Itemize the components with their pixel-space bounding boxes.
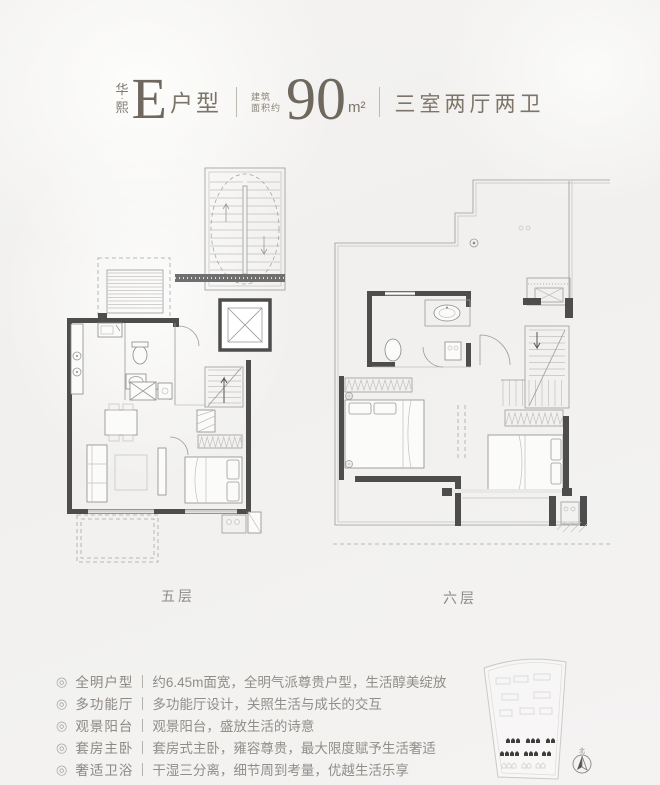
- area-unit: m²: [348, 99, 366, 124]
- feature-desc: 干湿三分离，细节周到考量，优越生活乐享: [152, 759, 409, 779]
- internal-stairs: [205, 367, 243, 407]
- dining-table-icon: [105, 404, 137, 441]
- feature-title: 观景阳台: [75, 715, 133, 735]
- feature-divider: [142, 697, 143, 710]
- living-room: [87, 445, 166, 502]
- bullet-icon: ◎: [56, 675, 67, 688]
- bedroom-right: [442, 410, 572, 496]
- louver-vent: [98, 258, 170, 320]
- stairs-down: [501, 326, 569, 408]
- entry-door-arc: [179, 326, 199, 346]
- sink-icon: [98, 323, 122, 337]
- feature-desc: 套房式主卧，雍容尊贵，最大限度赋予生活奢适: [152, 737, 436, 757]
- bedroom-door-arc: [170, 437, 188, 455]
- floor-label-5f: 五层: [58, 586, 298, 606]
- sofa-icon: [87, 445, 107, 502]
- desk-icon: [197, 410, 215, 432]
- kitchen: [71, 323, 122, 394]
- bullet-icon: ◎: [56, 763, 67, 776]
- site-boundary: [484, 659, 566, 779]
- feature-row: ◎ 观景阳台 观景阳台，盛放生活的诗意: [56, 714, 446, 736]
- feature-divider: [142, 719, 143, 732]
- area-label-line1: 建筑: [251, 92, 281, 104]
- area-label: 建筑 面积约: [251, 92, 281, 124]
- room-layout-summary: 三室两厅两卫: [394, 88, 544, 124]
- feature-title: 套房主卧: [75, 737, 133, 757]
- hall-door-arc: [480, 335, 510, 365]
- stairwell: [205, 168, 285, 290]
- floor-label-6f: 六层: [330, 588, 590, 608]
- toilet-icon: [385, 339, 401, 361]
- bed-icon: [185, 457, 242, 503]
- floor-plan-5f: [58, 160, 298, 580]
- fixture-dot: [526, 226, 530, 230]
- equipment-balcony: [549, 496, 587, 532]
- fixture-dot: [519, 226, 523, 230]
- elevator-icon: [220, 300, 270, 350]
- compass-label: 北: [579, 747, 585, 755]
- feature-divider: [142, 675, 143, 688]
- area-value: 90: [286, 75, 346, 124]
- wall-post: [455, 476, 461, 526]
- feature-divider: [142, 763, 143, 776]
- roof-drain-center: [473, 242, 476, 245]
- feature-desc: 多功能厅设计，关照生活与成长的交互: [152, 693, 382, 713]
- feature-desc: 约6.45m面宽，全明气派尊贵户型，生活醇美绽放: [152, 671, 446, 691]
- feature-row: ◎ 套房主卧 套房式主卧，雍容尊贵，最大限度赋予生活奢适: [56, 736, 446, 758]
- balcony: [77, 515, 158, 562]
- feature-desc: 观景阳台，盛放生活的诗意: [152, 715, 314, 735]
- feature-row: ◎ 全明户型 约6.45m面宽，全明气派尊贵户型，生活醇美绽放: [56, 670, 446, 692]
- corridor-grille: [175, 274, 285, 282]
- area-label-line2: 面积约: [251, 103, 281, 115]
- bed-icon: [488, 435, 563, 490]
- toilet-icon: [133, 346, 147, 364]
- bedroom-left: [339, 376, 441, 482]
- bed-icon: [345, 400, 424, 468]
- header-divider: [379, 87, 380, 117]
- brand-char-2: 熙: [116, 101, 130, 115]
- wardrobe-icon: [198, 435, 242, 448]
- bullet-icon: ◎: [56, 741, 67, 754]
- feature-divider: [142, 741, 143, 754]
- title-bar: 华 · 熙 E 户型 建筑 面积约 90 m² 三室两厅两卫: [0, 62, 660, 124]
- laundry: [130, 382, 172, 400]
- bullet-icon: ◎: [56, 719, 67, 732]
- feature-title: 多功能厅: [75, 693, 133, 713]
- room-opening: [458, 405, 465, 458]
- feature-list: ◎ 全明户型 约6.45m面宽，全明气派尊贵户型，生活醇美绽放 ◎ 多功能厅 多…: [56, 670, 446, 780]
- feature-title: 全明户型: [75, 671, 133, 691]
- feature-row: ◎ 奢适卫浴 干湿三分离，细节周到考量，优越生活乐享: [56, 758, 446, 780]
- feature-title: 奢适卫浴: [75, 759, 133, 779]
- floor-plan-6f: [325, 160, 615, 580]
- compass-icon: 北: [573, 747, 591, 773]
- unit-type-letter: E: [132, 73, 167, 124]
- header-divider: [236, 87, 237, 117]
- flyer-page: { "colors": { "accent": "#7c7568", "ink_…: [0, 0, 660, 785]
- tv-cabinet: [158, 448, 166, 495]
- closet-icon: [523, 278, 573, 318]
- brand-logo: 华 · 熙: [116, 83, 130, 124]
- equipment-platform: [222, 512, 261, 533]
- site-plan: 北: [478, 648, 613, 783]
- feature-row: ◎ 多功能厅 多功能厅设计，关照生活与成长的交互: [56, 692, 446, 714]
- unit-type-suffix: 户型: [170, 84, 222, 124]
- bullet-icon: ◎: [56, 697, 67, 710]
- rug: [115, 455, 147, 490]
- bathroom-6f: [367, 291, 471, 367]
